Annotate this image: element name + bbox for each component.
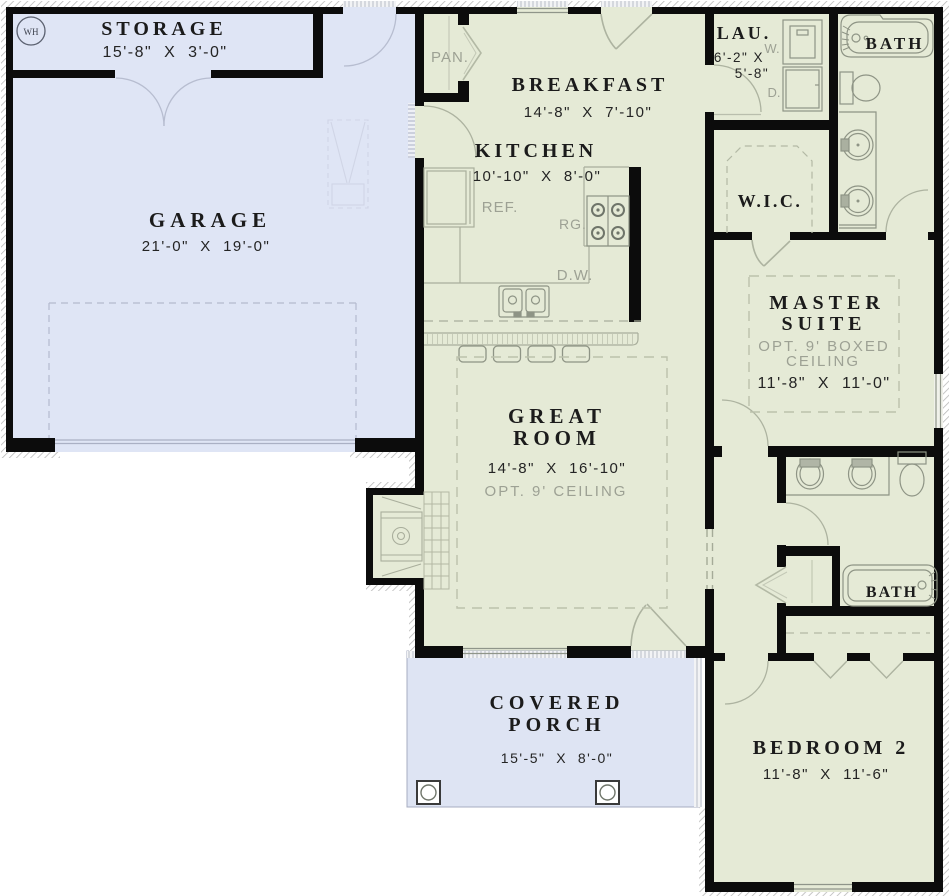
svg-text:14'-8" X 16'-10": 14'-8" X 16'-10": [488, 460, 626, 477]
svg-text:LAU.: LAU.: [717, 23, 772, 43]
svg-text:W.I.C.: W.I.C.: [738, 191, 803, 211]
svg-text:11'-8" X 11'-0": 11'-8" X 11'-0": [757, 375, 890, 392]
svg-text:10'-10" X 8'-0": 10'-10" X 8'-0": [473, 168, 602, 185]
svg-text:21'-0" X 19'-0": 21'-0" X 19'-0": [142, 238, 271, 255]
svg-text:14'-8" X 7'-10": 14'-8" X 7'-10": [524, 104, 653, 121]
svg-text:PORCH: PORCH: [508, 714, 605, 736]
svg-text:11'-8" X 11'-6": 11'-8" X 11'-6": [763, 766, 889, 783]
svg-text:D.W.: D.W.: [557, 267, 594, 284]
svg-text:15'-8" X 3'-0": 15'-8" X 3'-0": [102, 44, 227, 61]
svg-text:ROOM: ROOM: [513, 426, 601, 450]
svg-text:RG.: RG.: [559, 216, 587, 232]
svg-text:REF.: REF.: [482, 199, 519, 216]
svg-text:STORAGE: STORAGE: [101, 18, 226, 40]
svg-text:MASTER: MASTER: [769, 292, 885, 314]
svg-text:D.: D.: [768, 85, 781, 100]
svg-text:W.: W.: [764, 41, 779, 56]
svg-text:15'-5" X 8'-0": 15'-5" X 8'-0": [501, 750, 613, 766]
svg-text:5'-8": 5'-8": [735, 66, 769, 81]
svg-text:BEDROOM 2: BEDROOM 2: [753, 737, 910, 759]
svg-text:BATH: BATH: [866, 34, 925, 53]
svg-text:KITCHEN: KITCHEN: [475, 140, 597, 162]
svg-text:BREAKFAST: BREAKFAST: [512, 74, 669, 96]
svg-text:CEILING: CEILING: [786, 353, 860, 370]
svg-text:OPT. 9' CEILING: OPT. 9' CEILING: [485, 483, 628, 500]
svg-text:PAN.: PAN.: [431, 49, 469, 66]
svg-text:SUITE: SUITE: [781, 313, 866, 335]
svg-text:WH: WH: [24, 27, 39, 37]
svg-text:COVERED: COVERED: [489, 692, 624, 714]
svg-text:GREAT: GREAT: [508, 404, 606, 428]
svg-text:BATH: BATH: [866, 584, 918, 601]
svg-text:GARAGE: GARAGE: [149, 208, 271, 232]
svg-text:6'-2" X: 6'-2" X: [714, 50, 764, 65]
